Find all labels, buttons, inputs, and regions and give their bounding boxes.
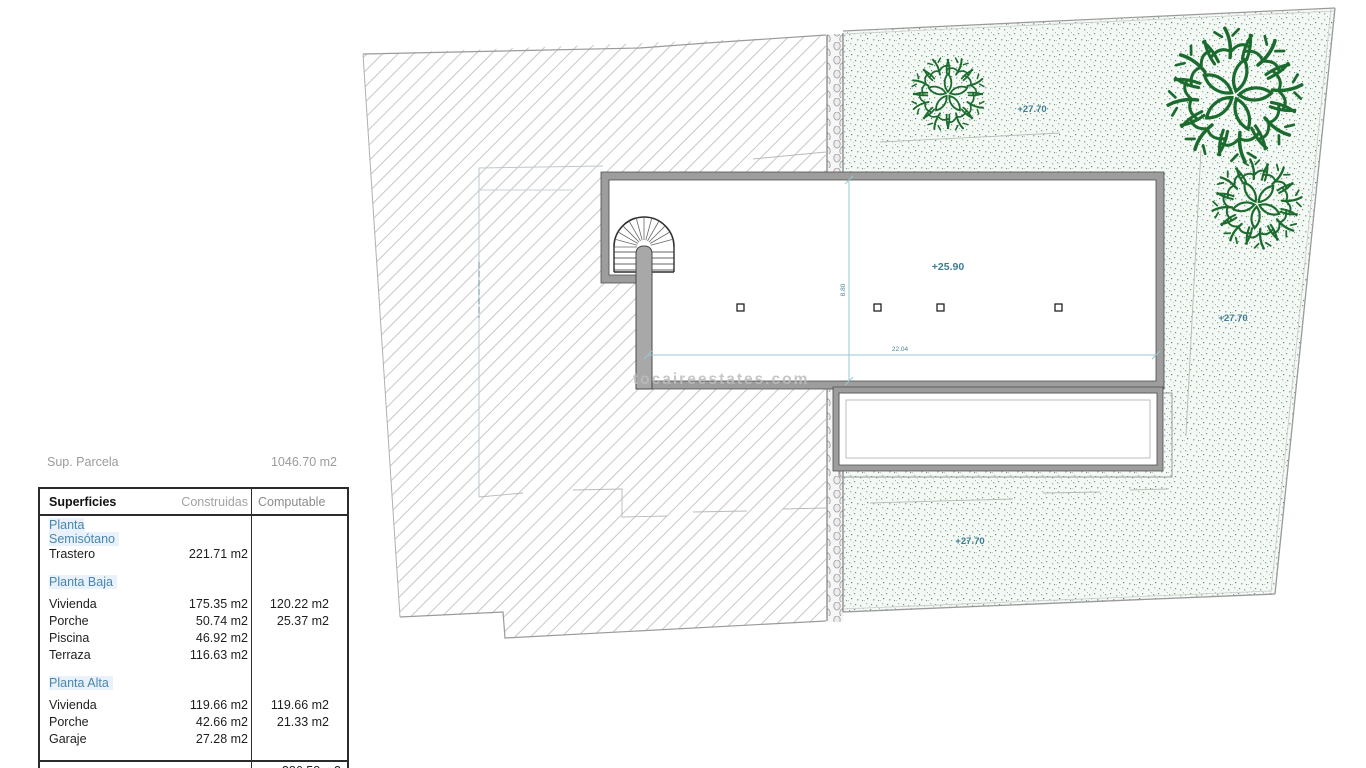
dimension-width-label: 22.04 (892, 346, 909, 353)
watermark-text: tocaireestates.com (633, 371, 809, 388)
parcel-summary: Sup. Parcela 1046.70 m2 (47, 455, 337, 469)
table-row: Planta Baja (40, 573, 347, 590)
table-row: Porche 50.74 m2 25.37 m2 (40, 612, 347, 629)
dimension-height-label: 8.80 (840, 283, 847, 296)
building-plan (601, 172, 1164, 389)
header-computable: Computable (248, 495, 347, 509)
areas-table: Superficies Construidas Computable Plant… (38, 487, 349, 768)
table-row: Vivienda 175.35 m2 120.22 m2 (40, 595, 347, 612)
level-label-floor: +25.90 (932, 261, 965, 273)
level-label-garden-right: +27.70 (1218, 313, 1247, 324)
parcel-area-label: Sup. Parcela (47, 455, 119, 469)
table-row: Terraza 116.63 m2 (40, 646, 347, 663)
table-row: Garaje 27.28 m2 (40, 730, 347, 747)
terrace-plan (833, 387, 1172, 477)
table-row: Planta Semisótano (40, 523, 347, 540)
section-label: Planta Baja (49, 575, 117, 589)
section-label: Planta Semisótano (49, 518, 119, 546)
table-row: Porche 42.66 m2 21.33 m2 (40, 713, 347, 730)
level-label-garden-bottom: +27.70 (955, 536, 984, 547)
level-label-garden-top: +27.70 (1017, 104, 1046, 115)
stair-core-wall (636, 246, 652, 389)
table-header-row: Superficies Construidas Computable (40, 489, 347, 516)
header-superficies: Superficies (40, 495, 154, 509)
table-row: Vivienda 119.66 m2 119.66 m2 (40, 696, 347, 713)
table-row: Trastero 221.71 m2 (40, 545, 347, 562)
section-label: Planta Alta (49, 676, 113, 690)
site-plan-page: 22.04 8.80 +25.90 +27.70 +27.70 +27.70 t… (0, 0, 1366, 768)
header-construidas: Construidas (154, 495, 248, 509)
parcel-area-value: 1046.70 m2 (271, 455, 337, 469)
table-row: Piscina 46.92 m2 (40, 629, 347, 646)
table-row-total-partial: 286.58 m2 (40, 762, 347, 768)
table-row: Planta Alta (40, 674, 347, 691)
table-column-divider (251, 489, 252, 768)
